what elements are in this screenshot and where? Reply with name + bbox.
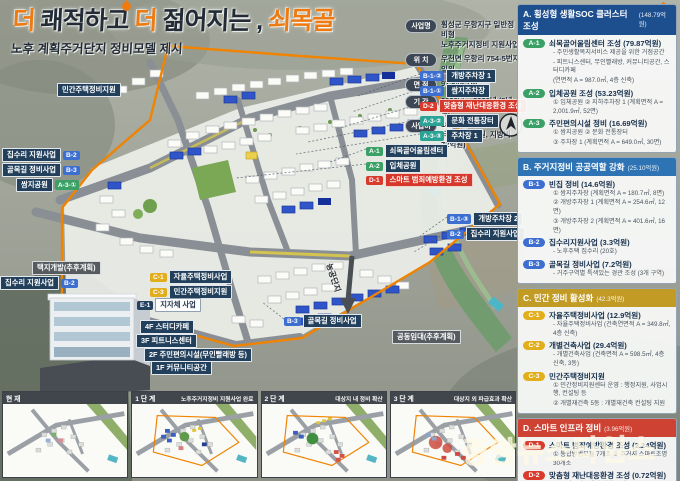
item-title: 빈집 정비 (14.6억원) <box>549 180 615 189</box>
info-label: 사업명 <box>405 19 437 33</box>
item-title: 쇠목골어울림센터 조성 (79.87억원) <box>549 39 661 48</box>
item-title: 입체공원 조성 (53.23억원) <box>549 89 633 98</box>
panel-item: A-2 입체공원 조성 (53.23억원) ① 입체공원 ② 지하주차장 1 (… <box>522 87 672 117</box>
panel-header: A. 횡성형 생활SOC 클러스터 조성 (148.79억원) <box>518 5 676 35</box>
info-value-line: 노후주거지정비 지원사업 <box>441 40 520 50</box>
title-seg: 쇠목골 <box>268 7 335 35</box>
item-sub: - 거주구역별 특색있는 경관 조성 (3개 구역) <box>553 270 671 279</box>
item-title: 맞춤형 재난대응환경 조성 (0.72억원) <box>549 471 666 480</box>
info-value: 횡성군 우항지구 일반정비형 노후주거지정비 지원사업 <box>441 19 520 50</box>
panel-header: C. 민간 정비 활성화 (42.3억원) <box>518 289 676 307</box>
panel-item: C-3 민간주택정비지원 ① 민간정비지원센터 운영 : 행정지원, 사업시행,… <box>522 370 672 410</box>
phase-panel-2: 2 단 계 대상지 내 정비 확산 <box>261 391 387 478</box>
panel-public-role: B. 주거지정비 공공역할 강화 (25.10억원) B-1 빈집 정비 (14… <box>517 157 677 284</box>
code-badge: B-3 <box>523 260 545 269</box>
phase-header: 1 단 계 노후주거지정비 지원사업 완료 <box>132 392 256 404</box>
phase-note: 대상지 내 정비 확산 <box>335 394 383 403</box>
panel-budget: (25.10억원) <box>628 163 660 172</box>
info-value-line: 180억원 <box>441 120 467 129</box>
item-sub: ② 개방주차장 1 (계획면적 A = 254.6㎡, 12면) <box>553 199 671 216</box>
info-value: 97,845.7㎡ <box>441 78 478 89</box>
item-sub: - 노후주택 집수리 (20호) <box>553 248 671 257</box>
item-title: 개별건축사업 (29.4억원) <box>549 341 627 350</box>
info-value-line: 횡성군 우항지구 일반정비형 <box>441 20 514 39</box>
phase-header: 3 단 계 대상지 외 파급효과 확산 <box>391 392 515 404</box>
phase-panel-current: 현 재 <box>2 391 128 478</box>
info-row: 사업명 횡성군 우항지구 일반정비형 노후주거지정비 지원사업 <box>405 19 520 50</box>
item-sub: ① 쌈지공원 ② 문화 전통장터 <box>553 129 671 138</box>
code-badge: B-1 <box>523 180 545 189</box>
code-badge: C-1 <box>523 311 545 320</box>
phase-strip: 현 재 1 단 계 노후주거지정비 지원사업 완료 <box>2 391 516 478</box>
item-sub: ③ 개방주차장 2 (계획면적 A = 401.6㎡, 16면) <box>553 218 671 235</box>
phase-title: 3 단 계 <box>394 393 414 403</box>
item-title: 집수리지원사업 (3.3억원) <box>549 238 630 247</box>
page-subtitle: 노후 계획주거단지 정비모델 제시 <box>11 38 334 57</box>
title-seg: 더 <box>134 7 163 35</box>
item-sub: ② 개별재건축 5동 : 개별재건축 컨설팅 지원 <box>553 400 671 409</box>
panel-item: B-3 골목길 정비사업 (7.2억원) - 거주구역별 특색있는 경관 조성 … <box>522 258 672 280</box>
phase-title: 1 단 계 <box>135 393 155 403</box>
panel-item: C-2 개별건축사업 (29.4억원) - 개별건축사업 (건축면적 A = 5… <box>522 339 672 369</box>
panel-header: B. 주거지정비 공공역할 강화 (25.10억원) <box>518 158 676 176</box>
phase-minimap <box>3 404 127 477</box>
code-badge: C-2 <box>523 341 545 350</box>
phase-minimap <box>262 404 386 477</box>
item-title: 민간주택정비지원 <box>549 372 605 381</box>
phase-note: 노후주거지정비 지원사업 완료 <box>181 394 254 403</box>
item-sub: - 주민생활복지서비스 제공을 위한 거점공간 <box>553 49 671 58</box>
phase-header: 2 단 계 대상지 내 정비 확산 <box>262 392 386 404</box>
panel-item: B-1 빈집 정비 (14.6억원) ① 쌈지주차장 (계획면적 A = 180… <box>522 178 672 236</box>
info-label: 사업비 <box>405 119 437 133</box>
panel-budget: (42.3억원) <box>596 294 624 303</box>
panel-title: A. 횡성형 생활SOC 클러스터 조성 <box>523 8 636 32</box>
panel-item: A-3 주민편의시설 정비 (16.69억원) ① 쌈지공원 ② 문화 전통장터… <box>522 117 672 148</box>
code-badge: C-3 <box>523 372 545 381</box>
page-title: 더 쾌적하고 더 젊어지는 , 쇠목골 <box>12 8 335 34</box>
item-sub: ① 민간정비지원센터 운영 : 행정지원, 사업시행, 컨설팅 등 <box>553 382 671 399</box>
code-badge: A-2 <box>523 89 545 98</box>
panel-soc-cluster: A. 횡성형 생활SOC 클러스터 조성 (148.79억원) A-1 쇠목골어… <box>517 4 677 153</box>
info-label: 기 간 <box>405 95 437 109</box>
poster-title: 더 쾌적하고 더 젊어지는 , 쇠목골 노후 계획주거단지 정비모델 제시 <box>11 8 335 57</box>
phase-minimap <box>132 404 256 477</box>
code-badge: A-3 <box>523 119 545 128</box>
item-title: 골목길 정비사업 (7.2억원) <box>549 260 632 269</box>
item-sub: (연면적 A = 987.0㎡, 4층 신축) <box>553 77 671 86</box>
item-title: 주민편의시설 정비 (16.69억원) <box>549 119 647 128</box>
panel-item: B-2 집수리지원사업 (3.3억원) - 노후주택 집수리 (20호) <box>522 236 672 258</box>
panel-item: C-1 자율주택정비사업 (12.9억원) - 자율주택정비사업 (건축연면적 … <box>522 309 672 339</box>
item-sub: ① 입체공원 ② 지하주차장 1 (계획면적 A = 2,001.9㎡, 52면… <box>553 99 671 116</box>
panel-item: D-2 맞춤형 재난대응환경 조성 (0.72억원) ① 스마트버스쉘터 설치 … <box>522 469 672 481</box>
panel-item: A-1 쇠목골어울림센터 조성 (79.87억원) - 주민생활복지서비스 제공… <box>522 37 672 87</box>
info-row: 위 치 우천면 우항리 754-5번지 일원 <box>405 53 520 74</box>
phase-title: 현 재 <box>6 393 20 403</box>
item-title: 자율주택정비사업 (12.9억원) <box>549 311 641 320</box>
title-seg: 젊어지는 , <box>162 7 269 35</box>
panel-title: B. 주거지정비 공공역할 강화 <box>523 161 625 173</box>
item-sub: - 개별건축사업 (건축면적 A = 598.5㎡, 4층 신축, 3동) <box>553 351 671 368</box>
legend-panels: A. 횡성형 생활SOC 클러스터 조성 (148.79억원) A-1 쇠목골어… <box>517 4 677 481</box>
phase-header: 현 재 <box>3 392 127 404</box>
info-row: 면 적 97,845.7㎡ <box>405 78 520 92</box>
phase-title: 2 단 계 <box>265 393 285 403</box>
phase-panel-1: 1 단 계 노후주거지정비 지원사업 완료 <box>131 391 257 478</box>
phase-note: 대상지 외 파급효과 확산 <box>454 394 512 403</box>
title-seg: 쾌적하고 <box>40 7 135 35</box>
item-sub: - 피트니스센터, 무인빨래방, 커뮤니티공간, 스터디카페 <box>553 59 671 76</box>
code-badge: D-2 <box>523 471 545 480</box>
code-badge: B-2 <box>523 238 545 247</box>
poster-root: 더 쾌적하고 더 젊어지는 , 쇠목골 노후 계획주거단지 정비모델 제시 사업… <box>0 0 680 481</box>
info-label: 위 치 <box>405 53 437 67</box>
panel-title: C. 민간 정비 활성화 <box>523 292 593 304</box>
code-badge: A-1 <box>523 39 545 48</box>
item-sub: - 자율주택정비사업 (건축연면적 A = 349.8㎡, 4층 신축) <box>553 321 671 338</box>
info-value: 우천면 우항리 754-5번지 일원 <box>441 53 520 74</box>
item-sub: ③ 주차장 1 (계획면적 A = 649.0㎡, 30면) <box>553 139 671 148</box>
panel-private-revitalization: C. 민간 정비 활성화 (42.3억원) C-1 자율주택정비사업 (12.9… <box>517 288 677 414</box>
panel-budget: (148.79억원) <box>639 10 671 28</box>
info-label: 면 적 <box>405 78 437 92</box>
watermark: 중앙뉴스타임스 <box>462 426 656 471</box>
community-center-building <box>40 294 150 398</box>
item-sub: ① 쌈지주차장 (계획면적 A = 180.7㎡, 8면) <box>553 190 671 199</box>
title-seg: 더 <box>12 7 41 35</box>
